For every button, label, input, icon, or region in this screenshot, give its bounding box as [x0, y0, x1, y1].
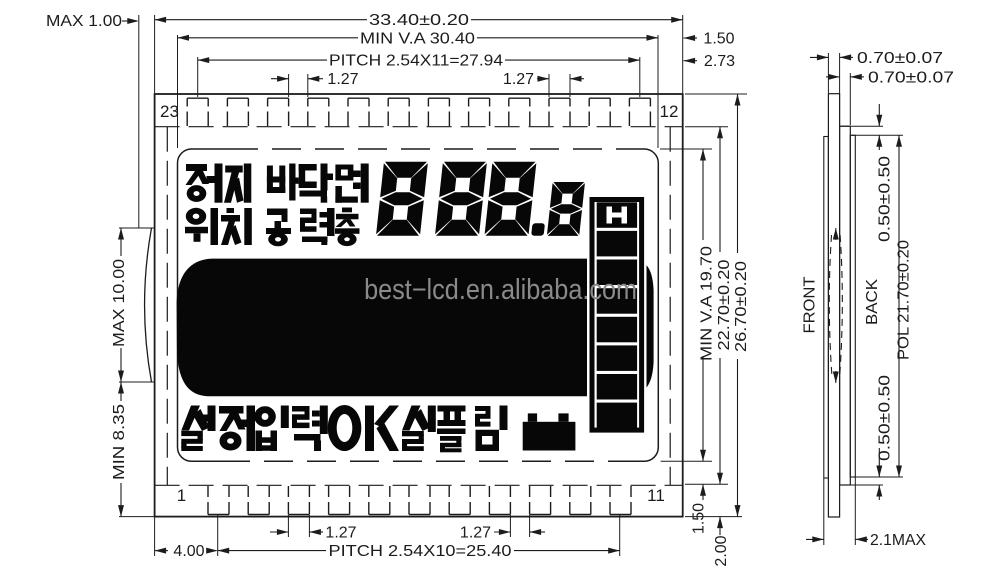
- svg-text:0.70±0.07: 0.70±0.07: [857, 50, 943, 67]
- svg-text:2.1MAX: 2.1MAX: [870, 532, 926, 549]
- svg-text:MIN 8.35: MIN 8.35: [111, 404, 128, 480]
- svg-text:POL 21.70±0.20: POL 21.70±0.20: [896, 240, 913, 360]
- svg-text:MIN V.A 30.40: MIN V.A 30.40: [360, 30, 475, 47]
- svg-text:23: 23: [160, 102, 179, 121]
- svg-text:1.27: 1.27: [327, 71, 358, 88]
- svg-text:PITCH 2.54X10=25.40: PITCH 2.54X10=25.40: [329, 543, 512, 560]
- svg-text:2.00: 2.00: [713, 535, 730, 566]
- svg-text:FRONT: FRONT: [802, 276, 819, 333]
- svg-text:MAX 1.00: MAX 1.00: [46, 13, 122, 30]
- svg-text:PITCH 2.54X11=27.94: PITCH 2.54X11=27.94: [329, 53, 503, 70]
- svg-text:33.40±0.20: 33.40±0.20: [369, 12, 469, 29]
- svg-text:1.27: 1.27: [460, 525, 491, 542]
- svg-text:MIN V.A 19.70: MIN V.A 19.70: [699, 246, 716, 361]
- svg-text:22.70±0.20: 22.70±0.20: [716, 259, 733, 350]
- svg-text:1.50: 1.50: [691, 503, 708, 534]
- svg-text:2.73: 2.73: [704, 53, 735, 70]
- svg-text:best−lcd.en.alibaba.com: best−lcd.en.alibaba.com: [364, 274, 637, 306]
- svg-text:1: 1: [177, 486, 186, 505]
- svg-text:11: 11: [647, 486, 665, 505]
- svg-text:1.27: 1.27: [325, 525, 356, 542]
- svg-text:1.27: 1.27: [503, 71, 534, 88]
- svg-text:12: 12: [660, 102, 679, 121]
- svg-text:MAX 10.00: MAX 10.00: [111, 259, 128, 347]
- svg-text:0.50±0.50: 0.50±0.50: [877, 375, 894, 461]
- svg-text:0.50±0.50: 0.50±0.50: [877, 156, 894, 242]
- svg-text:4.00: 4.00: [173, 543, 204, 560]
- svg-text:26.70±0.20: 26.70±0.20: [733, 261, 750, 352]
- svg-text:0.70±0.07: 0.70±0.07: [868, 69, 954, 86]
- svg-text:1.50: 1.50: [703, 31, 734, 48]
- svg-text:BACK: BACK: [864, 279, 881, 325]
